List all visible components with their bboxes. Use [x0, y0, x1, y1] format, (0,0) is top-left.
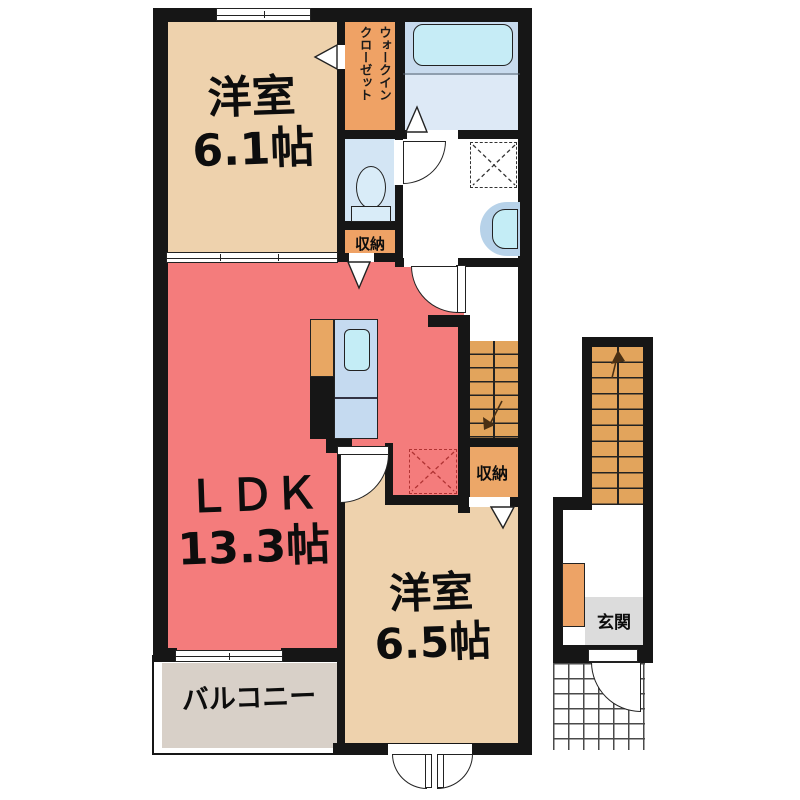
wall-right [518, 8, 532, 755]
window-ldk-balcony [175, 650, 283, 662]
wall-ldk-bottom-left [153, 648, 177, 662]
window-tick [264, 11, 265, 19]
floor-plan: 洋室 6.1帖 ウォークイン クローゼット 収納 ＬＤＫ 13.3帖 収納 洋室… [0, 0, 800, 800]
window-tick [220, 254, 221, 260]
door-arc-double-left [392, 754, 427, 789]
label-balcony: バルコニー [167, 680, 330, 717]
wall-hall-stub [428, 315, 468, 327]
wall-rb-stairs-left [582, 337, 592, 510]
label-bedroom-bottom: 洋室 6.5帖 [346, 565, 517, 670]
window-tick [229, 653, 230, 660]
label-ldk: ＬＤＫ 13.3帖 [161, 467, 345, 577]
window-bedroom-top [216, 8, 311, 21]
sliding-door-bedroom-ldk [166, 252, 338, 263]
wall-rb-right [643, 337, 653, 663]
toilet-tank [351, 206, 391, 222]
label-storage-by-stairs: 収納 [466, 460, 518, 484]
kitchen-counter-divider [335, 397, 377, 399]
label-storage-by-toilet: 収納 [345, 233, 395, 254]
wall-kitchen-base [310, 375, 334, 439]
bathtub [413, 24, 513, 66]
door-leaf-double-left [425, 754, 432, 788]
wall-closet-bathroom-divider [395, 8, 405, 138]
staircase-entrance-centerline [617, 347, 619, 505]
doorway-storage1 [349, 253, 374, 262]
entrance-door-leaf [588, 649, 638, 662]
staircase-upper-centerline [493, 341, 495, 438]
window-line [167, 258, 337, 259]
kitchen-cabinet [310, 319, 334, 377]
wall-ldk-bottom-right [281, 648, 345, 662]
washbasin-bowl [492, 209, 518, 249]
label-entrance: 玄関 [585, 608, 643, 633]
label-bedroom-top: 洋室 6.1帖 [168, 69, 337, 179]
kitchen-sink [344, 329, 370, 371]
shoe-cabinet [562, 563, 585, 627]
washing-machine-space [470, 142, 517, 188]
toilet-bowl [356, 166, 386, 209]
window-tick [278, 254, 279, 260]
wall-under-toilet [337, 221, 403, 230]
doorway-closet-to-bedroom [337, 45, 345, 69]
doorway-bathroom [407, 130, 458, 139]
door-leaf-double-right [437, 754, 444, 788]
wall-under-stairs [458, 438, 532, 447]
label-walk-in-closet: ウォークイン クローゼット [348, 26, 394, 130]
room-bathroom-lower [403, 75, 520, 133]
wall-nook-bottom [385, 495, 464, 505]
refrigerator-space [409, 449, 457, 494]
doorway-storage2 [469, 497, 510, 507]
